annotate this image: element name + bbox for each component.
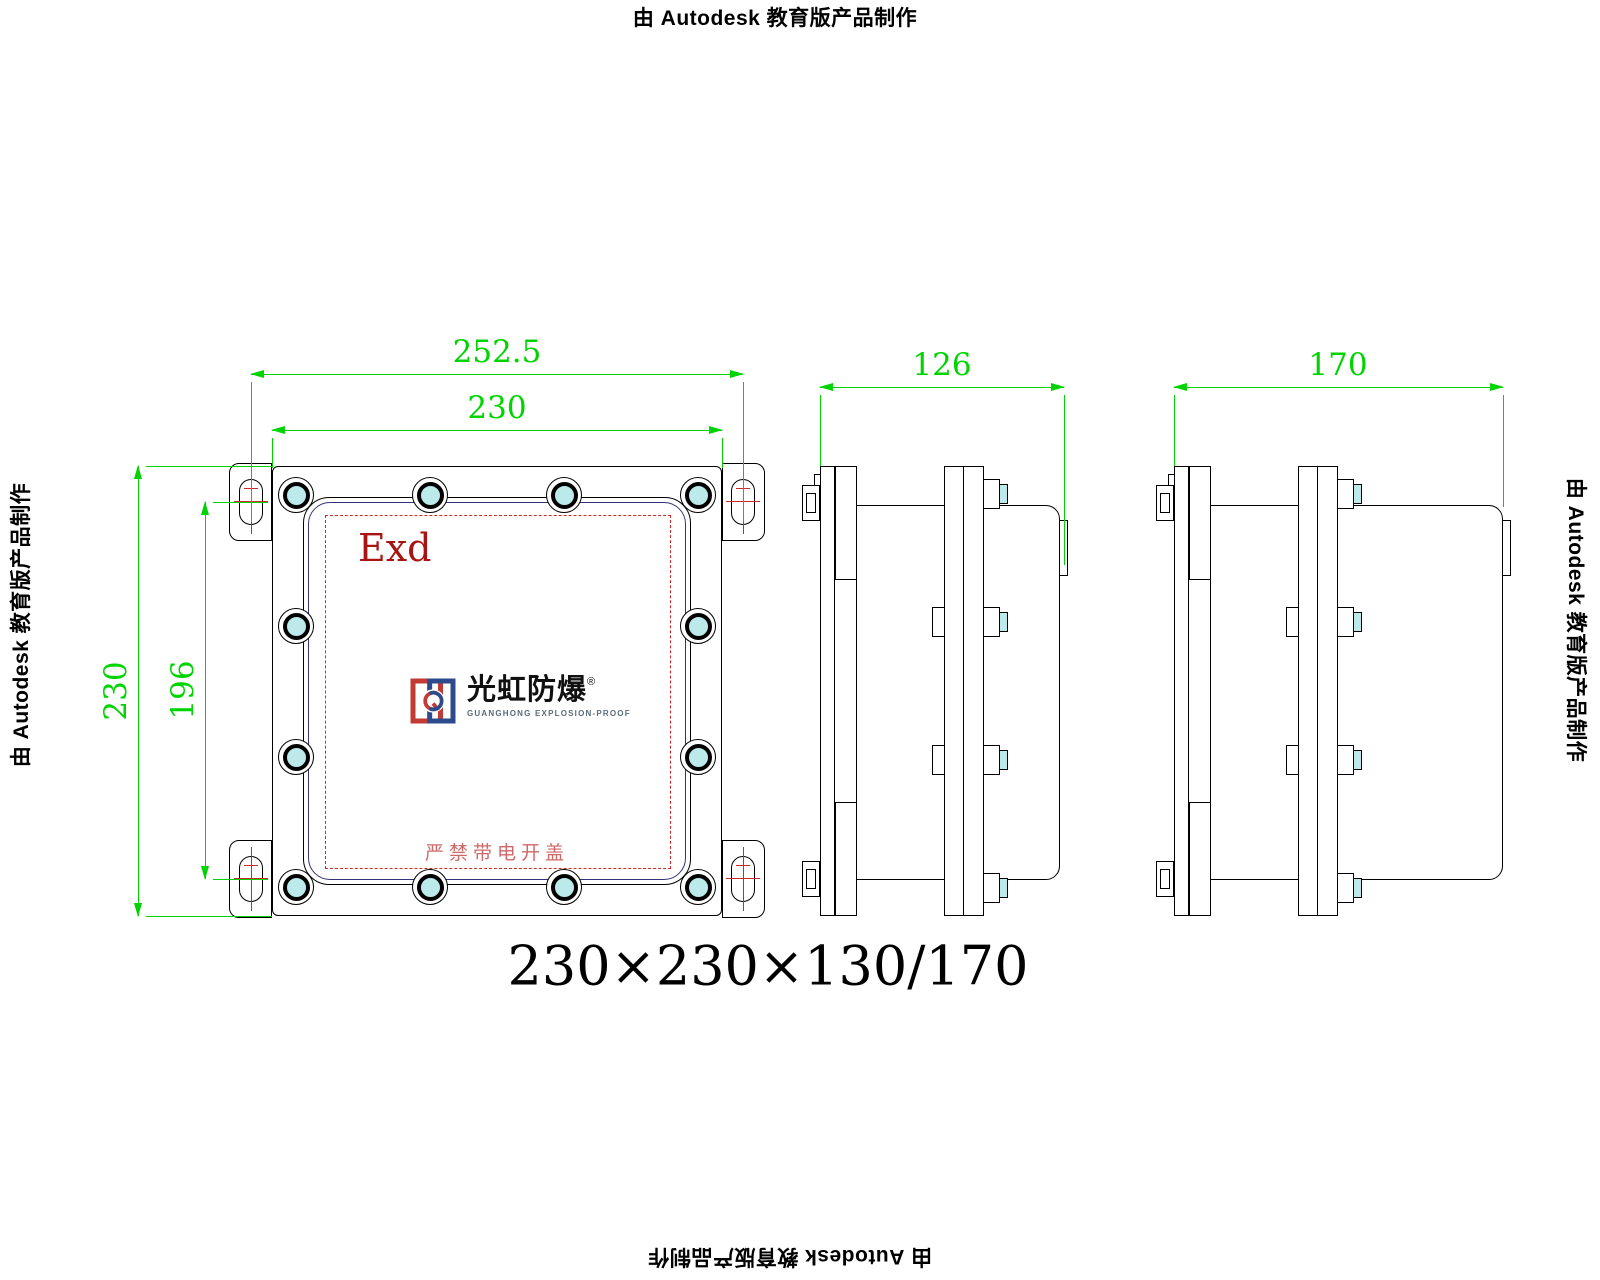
autodesk-notice-right: 由 Autodesk 教育版产品制作 (1562, 478, 1592, 762)
dim-label-flange-height: 230 (98, 661, 134, 720)
extension-line (722, 438, 723, 468)
enclosure-body (983, 505, 1060, 880)
flange-bolt (983, 607, 1000, 637)
autodesk-notice-left: 由 Autodesk 教育版产品制作 (5, 483, 35, 767)
extension-line (1503, 395, 1504, 507)
cover-bolt (546, 477, 582, 513)
flange-plate-cover-side (944, 466, 964, 916)
enclosure-body (1337, 505, 1503, 880)
extension-line (146, 466, 272, 467)
cover-bolt (412, 869, 448, 905)
flange-bolt (983, 873, 1000, 903)
dim-line-mounting-width (251, 374, 743, 375)
flange-plate-body-side (1317, 466, 1338, 916)
flange-bolt (1337, 479, 1354, 509)
dim-line-depth-small (820, 387, 1064, 388)
dim-label-mounting-width: 252.5 (453, 334, 542, 370)
flange-bolt-thread (1353, 612, 1362, 632)
autodesk-notice-bottom: 由 Autodesk 教育版产品制作 (648, 1243, 932, 1273)
cover-bolt (680, 608, 716, 644)
dim-label-mounting-height: 196 (165, 660, 201, 719)
flange-bolt (1337, 873, 1354, 903)
warning-text: 严禁带电开盖 (425, 838, 569, 865)
cover-bolt (412, 477, 448, 513)
extension-line (1174, 395, 1175, 466)
brand-subtitle: GUANGHONG EXPLOSION-PROOF (467, 709, 631, 718)
flange-bolt-thread (999, 484, 1008, 504)
flange-bolt (983, 745, 1000, 775)
dim-line-flange-width (272, 430, 722, 431)
ear-bolt-head-inner (806, 493, 816, 513)
slot-centerline (244, 865, 258, 866)
ear-bolt-head-inner (806, 869, 816, 889)
flange-bolt-thread (999, 612, 1008, 632)
cover-bolt (278, 739, 314, 775)
extension-line (213, 502, 268, 503)
flange-bolt-thread (1353, 878, 1362, 898)
cover-face-plate (1174, 466, 1189, 916)
brand-logo-text: 光虹防爆® GUANGHONG EXPLOSION-PROOF (467, 676, 631, 718)
brand-name: 光虹防爆 (467, 674, 587, 706)
cover-bolt (546, 869, 582, 905)
ear-block (835, 802, 857, 916)
registered-mark: ® (587, 676, 595, 688)
cover-bolt (680, 477, 716, 513)
cover-bolt (680, 739, 716, 775)
bolt-boss (932, 745, 945, 775)
cover-bolt (278, 477, 314, 513)
autodesk-notice-top: 由 Autodesk 教育版产品制作 (633, 2, 917, 32)
drawing-sheet: 由 Autodesk 教育版产品制作 由 Autodesk 教育版产品制作 由 … (0, 0, 1600, 1280)
cover-bolt (278, 608, 314, 644)
ear-bolt-head-inner (1160, 869, 1170, 889)
guanghong-logo-icon (408, 676, 458, 726)
bolt-boss (1286, 745, 1299, 775)
extension-line (251, 382, 252, 522)
extension-line (213, 879, 268, 880)
cover-face-plate (820, 466, 835, 916)
flange-plate-body-side (963, 466, 984, 916)
brand-logo: 光虹防爆® GUANGHONG EXPLOSION-PROOF (408, 676, 631, 726)
slot-centerline (736, 865, 750, 866)
dim-label-depth-large: 170 (1308, 347, 1367, 383)
cover-body (856, 505, 948, 880)
flange-bolt (983, 479, 1000, 509)
dim-line-depth-large (1174, 387, 1503, 388)
cover-bolt (278, 869, 314, 905)
dim-label-depth-small: 126 (912, 347, 971, 383)
flange-bolt (1337, 745, 1354, 775)
extension-line (146, 916, 272, 917)
ear-block (835, 466, 857, 580)
slot-centerline (726, 878, 760, 879)
model-size-title: 230×230×130/170 (508, 935, 1029, 998)
ear-block (1189, 466, 1211, 580)
bolt-boss (932, 607, 945, 637)
flange-plate-cover-side (1298, 466, 1318, 916)
dim-line-mounting-height (205, 502, 206, 879)
cover-body (1210, 505, 1302, 880)
ear-bolt-head-inner (1160, 493, 1170, 513)
cover-bolt (680, 869, 716, 905)
flange-bolt-thread (1353, 750, 1362, 770)
flange-bolt-thread (1353, 484, 1362, 504)
slot-centerline (743, 847, 744, 911)
flange-bolt (1337, 607, 1354, 637)
flange-bolt-thread (999, 878, 1008, 898)
exd-marking: Exd (358, 526, 432, 570)
flange-bolt-thread (999, 750, 1008, 770)
extension-line (820, 395, 821, 466)
bolt-boss (1286, 607, 1299, 637)
dim-label-flange-width: 230 (467, 390, 526, 426)
extension-line (272, 438, 273, 468)
conduit-boss (1502, 520, 1511, 576)
extension-line (743, 382, 744, 522)
dim-line-flange-height (138, 466, 139, 916)
ear-block (1189, 802, 1211, 916)
extension-line (1064, 395, 1065, 565)
